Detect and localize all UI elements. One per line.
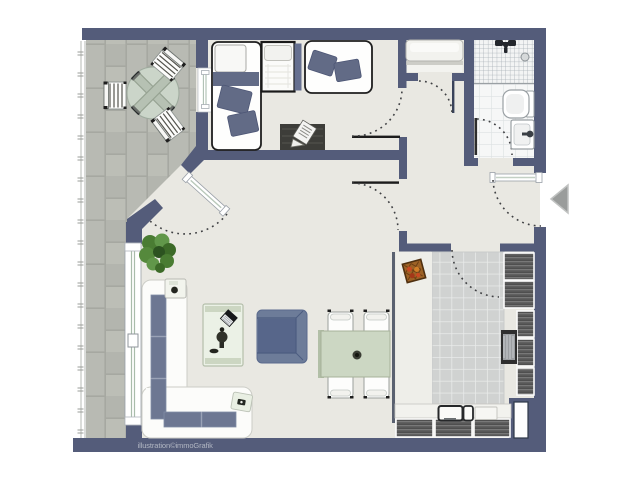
- svg-text:illustration©immoGrafik: illustration©immoGrafik: [138, 441, 214, 450]
